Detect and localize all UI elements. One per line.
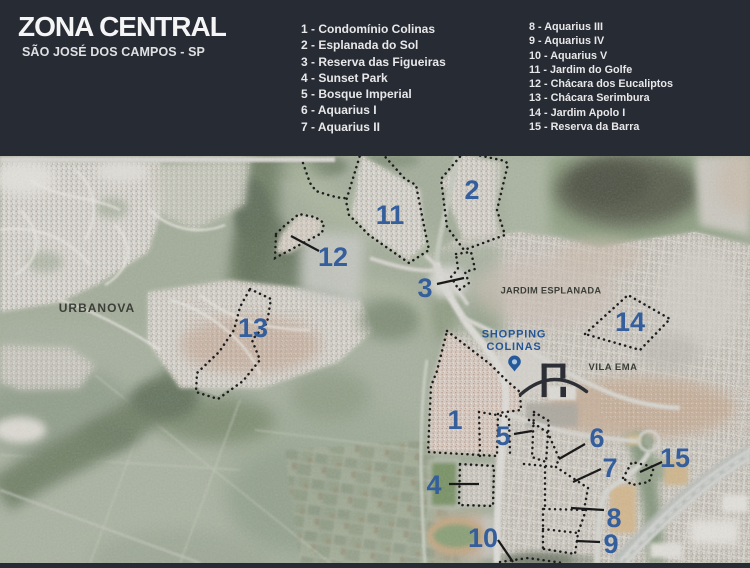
svg-text:VILA EMA: VILA EMA bbox=[588, 362, 637, 373]
svg-text:7: 7 bbox=[602, 453, 617, 483]
svg-text:URBANOVA: URBANOVA bbox=[59, 301, 135, 315]
svg-text:JARDIM ESPLANADA: JARDIM ESPLANADA bbox=[501, 286, 602, 296]
svg-text:5: 5 bbox=[495, 421, 510, 451]
svg-text:9: 9 bbox=[603, 529, 618, 559]
svg-text:11: 11 bbox=[376, 200, 405, 230]
svg-text:6: 6 bbox=[589, 423, 604, 453]
svg-text:2: 2 bbox=[464, 175, 479, 205]
svg-text:14: 14 bbox=[615, 307, 645, 337]
svg-text:3: 3 bbox=[417, 273, 432, 303]
svg-text:COLINAS: COLINAS bbox=[486, 341, 541, 353]
svg-text:1: 1 bbox=[447, 405, 462, 435]
svg-text:10: 10 bbox=[468, 523, 498, 553]
svg-text:SHOPPING: SHOPPING bbox=[482, 329, 546, 341]
svg-text:15: 15 bbox=[660, 443, 690, 473]
svg-text:12: 12 bbox=[318, 242, 348, 272]
svg-text:4: 4 bbox=[426, 470, 441, 500]
svg-text:13: 13 bbox=[238, 313, 268, 343]
